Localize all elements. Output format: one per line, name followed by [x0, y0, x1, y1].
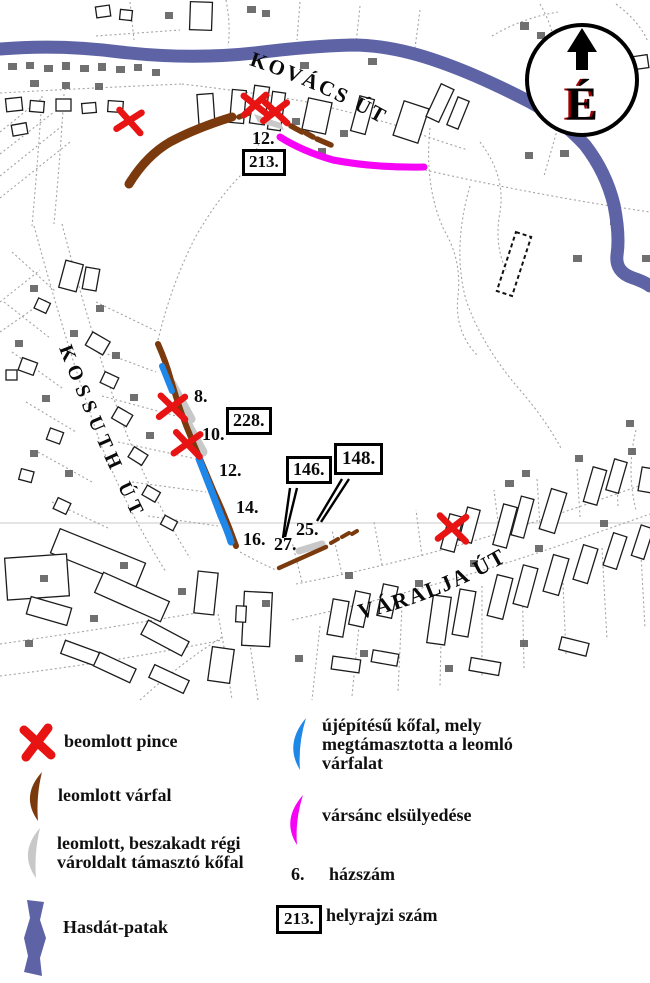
house-number-kossuth-12: 12. [219, 460, 242, 481]
legend-label-new-stone-wall-line2: megtámasztotta a leomló [322, 735, 513, 754]
legend-label-new-stone-wall: újépítésű kőfal, mely megtámasztotta a l… [322, 716, 513, 773]
house-number-kossuth-14: 14. [236, 497, 259, 518]
stream-legend-icon [24, 900, 46, 976]
legend-label-house-number: házszám [329, 865, 395, 884]
legend-parcel-number-sample: 213. [276, 905, 322, 934]
legend-label-parcel-number: helyrajzi szám [326, 906, 437, 925]
wall-markings [129, 113, 424, 568]
house-number-kossuth-10: 10. [202, 424, 225, 445]
legend-label-new-stone-wall-line3: várfalat [322, 754, 513, 773]
moat-subsidence-legend-icon [290, 795, 303, 845]
parcel-number-148: 148. [334, 443, 383, 475]
legend-label-old-support-wall: leomlott, beszakadt régi vároldalt támas… [57, 834, 244, 872]
collapsed-cellar-legend-icon [24, 728, 51, 757]
collapsed-wall-kovacs [129, 117, 232, 184]
house-number-kossuth-8: 8. [194, 386, 208, 407]
legend-label-old-support-wall-line2: vároldalt támasztó kőfal [57, 853, 244, 872]
svg-text:KOSSUTH ÚT: KOSSUTH ÚT [54, 342, 150, 524]
legend-label-moat-subsidence: vársánc elsülyedése [322, 806, 471, 825]
north-letter: É [566, 78, 598, 131]
parcel-number-228: 228. [226, 407, 272, 435]
old-support-wall-legend-icon [28, 828, 40, 878]
house-number-varalja-27: 27. [274, 534, 297, 555]
moat-subsidence-line [280, 137, 424, 167]
parcel-number-146: 146. [286, 456, 332, 484]
house-number-varalja-25: 25. [296, 519, 319, 540]
parcel-number-213: 213. [242, 149, 286, 176]
legend-label-stream: Hasdát-patak [63, 918, 168, 937]
legend-label-collapsed-wall: leomlott várfal [58, 786, 171, 805]
street-label-kossuth: KOSSUTH ÚT [54, 342, 150, 524]
legend-house-number-sample: 6. [291, 865, 305, 884]
legend-label-new-stone-wall-line1: újépítésű kőfal, mely [322, 716, 513, 735]
legend-label-old-support-wall-line1: leomlott, beszakadt régi [57, 834, 244, 853]
north-indicator: É É [527, 25, 637, 135]
collapsed-wall-varalja-dashes [331, 531, 357, 543]
house-number-kossuth-16: 16. [243, 529, 266, 550]
legend-label-collapsed-cellar: beomlott pince [64, 732, 177, 751]
collapsed-wall-legend-icon [30, 772, 42, 821]
map-figure: KOVÁCS ÚT KOSSUTH ÚT VÁRALJA ÚT É [0, 0, 650, 983]
house-number-kovacs-12: 12. [252, 128, 275, 149]
new-stone-wall-legend-icon [293, 718, 306, 770]
